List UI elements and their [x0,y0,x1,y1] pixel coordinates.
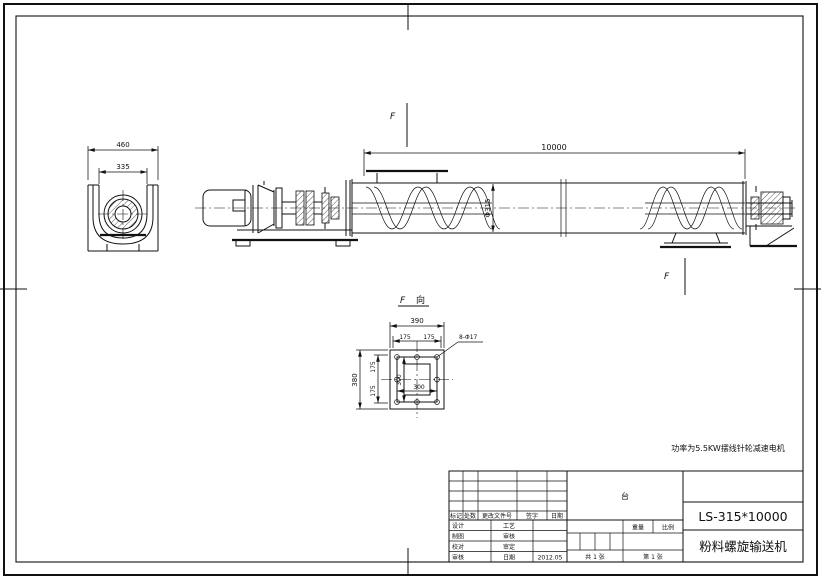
drawing-border [0,4,821,576]
bolt-holes-label: 8-Φ17 [459,334,478,341]
drive-base [232,230,358,246]
sign-date-label: 日期 [503,554,515,562]
overall-length-label: 10000 [541,143,566,152]
rev-header-count: 处数 [464,512,476,520]
rev-header-docno: 更改文件号 [482,512,512,520]
dim-trough-width: 460 [116,141,129,149]
rev-header-mark: 标记 [450,512,462,520]
dim-screw-diameter: Φ315 [484,184,493,232]
rev-header-date: 日期 [551,512,563,520]
sheet-total: 共 1 张 [585,553,605,561]
dim-hole-pitch-h1: 175 [399,334,411,341]
screw-diameter-label: Φ315 [484,199,492,218]
dim-hole-pitch-h2: 175 [423,334,435,341]
weight-label: 重量 [632,524,644,532]
title-block: 标记 处数 更改文件号 签字 日期 设计 制图 校对 审核 工艺 审核 审定 日… [449,471,803,562]
dim-opening-h: 300 [413,384,425,391]
power-note: 功率为5.5KW摆线针轮减速电机 [671,443,785,453]
motor-terminal-box [233,200,245,211]
section-title-direction: 向 [416,294,425,306]
dim-trough-inner-width: 335 [116,163,129,171]
section-marker-bottom: F [664,272,670,282]
drawing-number: LS-315*10000 [698,509,787,524]
outlet-foot [660,233,731,247]
end-view: 460 335 [88,141,158,251]
sign-approve: 审定 [503,543,515,551]
rev-header-signature: 签字 [526,512,538,520]
dim-flange-height: 380 [351,373,359,386]
quantity-unit: 台 [621,491,629,501]
sign-check: 校对 [452,543,464,551]
sign-draw: 制图 [452,533,464,541]
dim-overall-length: 10000 [364,143,745,179]
main-view: Φ315 10000 [195,103,798,295]
sign-design: 设计 [452,522,464,530]
dim-opening-v: 300 [396,374,403,386]
title-block-date: 2012.05 [538,555,563,562]
dim-hole-pitch-v2: 175 [370,385,377,397]
dim-hole-pitch-v1: 175 [370,361,377,373]
dim-flange-width: 390 [410,317,423,325]
sign-audit: 审核 [452,554,464,562]
sign-process: 工艺 [503,522,515,530]
section-marker-top: F [390,112,396,122]
sheet-number: 第 1 张 [643,553,663,561]
sign-review: 审核 [503,533,515,541]
section-title-letter: F [400,296,406,306]
gear-reducer [253,181,282,233]
section-markers: F F [390,103,685,295]
drawing-title: 粉料螺旋输送机 [699,539,787,554]
drawing-canvas: 460 335 [0,0,821,579]
cad-drawing-sheet: 460 335 [0,0,821,579]
scale-label: 比例 [662,524,674,532]
bearing-bracket [746,226,797,246]
section-view-f: F 向 390 175 175 380 175 175 [351,294,483,418]
inlet-flange [366,171,448,183]
